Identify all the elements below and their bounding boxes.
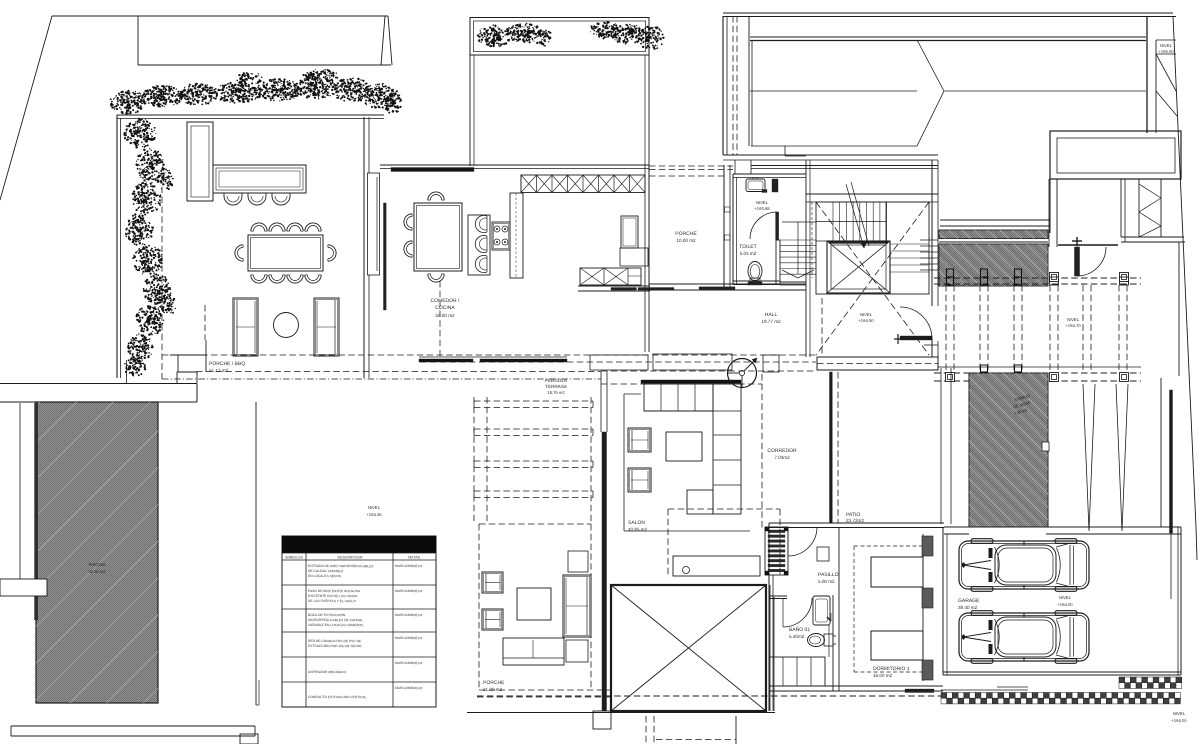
svg-text:MARCA/MODELO:: MARCA/MODELO: bbox=[395, 661, 423, 665]
svg-text:DORMITORIO 1: DORMITORIO 1 bbox=[873, 666, 910, 672]
svg-text:DE CAUDAL VARIABLE: DE CAUDAL VARIABLE bbox=[308, 569, 344, 573]
svg-text:5.04 m2: 5.04 m2 bbox=[740, 251, 757, 256]
svg-text:NIVEL: NIVEL bbox=[756, 200, 769, 205]
svg-text:NIVEL: NIVEL bbox=[368, 505, 381, 510]
svg-text:TOILET: TOILET bbox=[739, 244, 756, 250]
svg-text:MARCA/MODELO:: MARCA/MODELO: bbox=[395, 564, 423, 568]
svg-text:51.12 m2: 51.12 m2 bbox=[209, 368, 229, 373]
svg-text:40.85 m2: 40.85 m2 bbox=[628, 527, 648, 532]
svg-text:23.72m2: 23.72m2 bbox=[846, 518, 864, 523]
svg-text:+194.35: +194.35 bbox=[366, 512, 382, 517]
svg-text:BOCA DE EXTRACCIÓN: BOCA DE EXTRACCIÓN bbox=[308, 612, 346, 617]
svg-text:PORCHE: PORCHE bbox=[675, 231, 697, 237]
svg-text:+194.00: +194.00 bbox=[1057, 602, 1073, 607]
svg-text:NOTAS: NOTAS bbox=[408, 555, 421, 559]
svg-text:PISCINA: PISCINA bbox=[89, 562, 106, 567]
svg-text:DE LAS PUERTAS Y EL SUELO: DE LAS PUERTAS Y EL SUELO bbox=[308, 599, 356, 603]
svg-text:GARAGE: GARAGE bbox=[958, 598, 980, 604]
svg-text:SIMBOLOS: SIMBOLOS bbox=[285, 555, 303, 559]
svg-text:BAÑO 01: BAÑO 01 bbox=[789, 626, 810, 633]
svg-text:EXTRACCIÓN POR FALSO TECHO: EXTRACCIÓN POR FALSO TECHO bbox=[308, 643, 362, 648]
svg-text:50.00 m2: 50.00 m2 bbox=[435, 313, 455, 318]
svg-text:PORCHE / BBQ: PORCHE / BBQ bbox=[209, 361, 245, 367]
svg-text:SALON: SALON bbox=[628, 520, 645, 526]
svg-text:+195.00: +195.00 bbox=[1158, 49, 1174, 54]
svg-text:+194.50: +194.50 bbox=[858, 318, 874, 323]
svg-text:7.03m2: 7.03m2 bbox=[774, 455, 790, 460]
svg-text:5.00 m2: 5.00 m2 bbox=[818, 579, 835, 584]
svg-text:PASO DE AIRE ENTRE HOLGURA: PASO DE AIRE ENTRE HOLGURA bbox=[308, 589, 361, 593]
svg-text:EN LOCALES SECOS: EN LOCALES SECOS bbox=[308, 574, 342, 578]
svg-text:21.00 m2: 21.00 m2 bbox=[483, 687, 503, 692]
svg-text:EXISTENTE ENTRE LAS HOJAS: EXISTENTE ENTRE LAS HOJAS bbox=[308, 594, 358, 598]
svg-text:DESCRIPCION: DESCRIPCION bbox=[338, 555, 363, 559]
svg-text:MARCA/MODELO:: MARCA/MODELO: bbox=[395, 613, 423, 617]
svg-text:19.77 m2: 19.77 m2 bbox=[761, 319, 781, 324]
svg-text:CORREDOR: CORREDOR bbox=[767, 448, 797, 454]
svg-text:+194.70: +194.70 bbox=[1065, 323, 1081, 328]
svg-text:HALL: HALL bbox=[765, 312, 778, 318]
svg-text:NIVEL: NIVEL bbox=[1160, 43, 1173, 48]
svg-text:+194.00: +194.00 bbox=[1171, 718, 1187, 723]
svg-text:COMEDOR /: COMEDOR / bbox=[431, 298, 461, 304]
svg-text:PORCHE: PORCHE bbox=[483, 680, 505, 686]
svg-text:NIVEL: NIVEL bbox=[1067, 317, 1080, 322]
svg-text:+193.68: +193.68 bbox=[754, 206, 770, 211]
svg-text:NIVEL: NIVEL bbox=[1059, 595, 1072, 600]
svg-text:TERRASA: TERRASA bbox=[545, 384, 568, 389]
svg-text:16.00 m2: 16.00 m2 bbox=[873, 673, 893, 678]
svg-text:18.75 m2: 18.75 m2 bbox=[547, 390, 565, 395]
svg-text:PASILLO: PASILLO bbox=[818, 572, 839, 578]
svg-text:10.00 m2: 10.00 m2 bbox=[676, 238, 696, 243]
svg-text:CONDUCTO EXTRACCIÓN VERTICAL: CONDUCTO EXTRACCIÓN VERTICAL bbox=[308, 694, 367, 699]
svg-text:ENTRADA DE AIRE HIGRORREGULABL: ENTRADA DE AIRE HIGRORREGULABLES bbox=[308, 564, 374, 568]
svg-text:VARIABLE EN LOCALES HÚMEDOS: VARIABLE EN LOCALES HÚMEDOS bbox=[308, 623, 364, 627]
svg-text:PERGOLA: PERGOLA bbox=[545, 378, 568, 383]
svg-text:RED DE CONDUCTOS DE PVC DE: RED DE CONDUCTOS DE PVC DE bbox=[308, 639, 362, 643]
svg-text:5.40m2: 5.40m2 bbox=[789, 634, 805, 639]
svg-text:MARCA/MODELO:: MARCA/MODELO: bbox=[395, 636, 423, 640]
svg-text:MARCA/MODELO:: MARCA/MODELO: bbox=[395, 686, 423, 690]
svg-text:42.35 m2: 42.35 m2 bbox=[89, 569, 106, 574]
svg-text:NIVEL: NIVEL bbox=[860, 312, 873, 317]
svg-text:HIGRORREGULABLES DE CAUDAL: HIGRORREGULABLES DE CAUDAL bbox=[308, 618, 363, 622]
svg-text:ASPIRADOR MECÁNICO: ASPIRADOR MECÁNICO bbox=[308, 670, 347, 674]
svg-text:COCINA: COCINA bbox=[435, 305, 455, 311]
svg-text:NIVEL: NIVEL bbox=[1173, 711, 1186, 716]
svg-text:MARCA/MODELO:: MARCA/MODELO: bbox=[395, 589, 423, 593]
svg-text:38.40 m2: 38.40 m2 bbox=[958, 605, 978, 610]
